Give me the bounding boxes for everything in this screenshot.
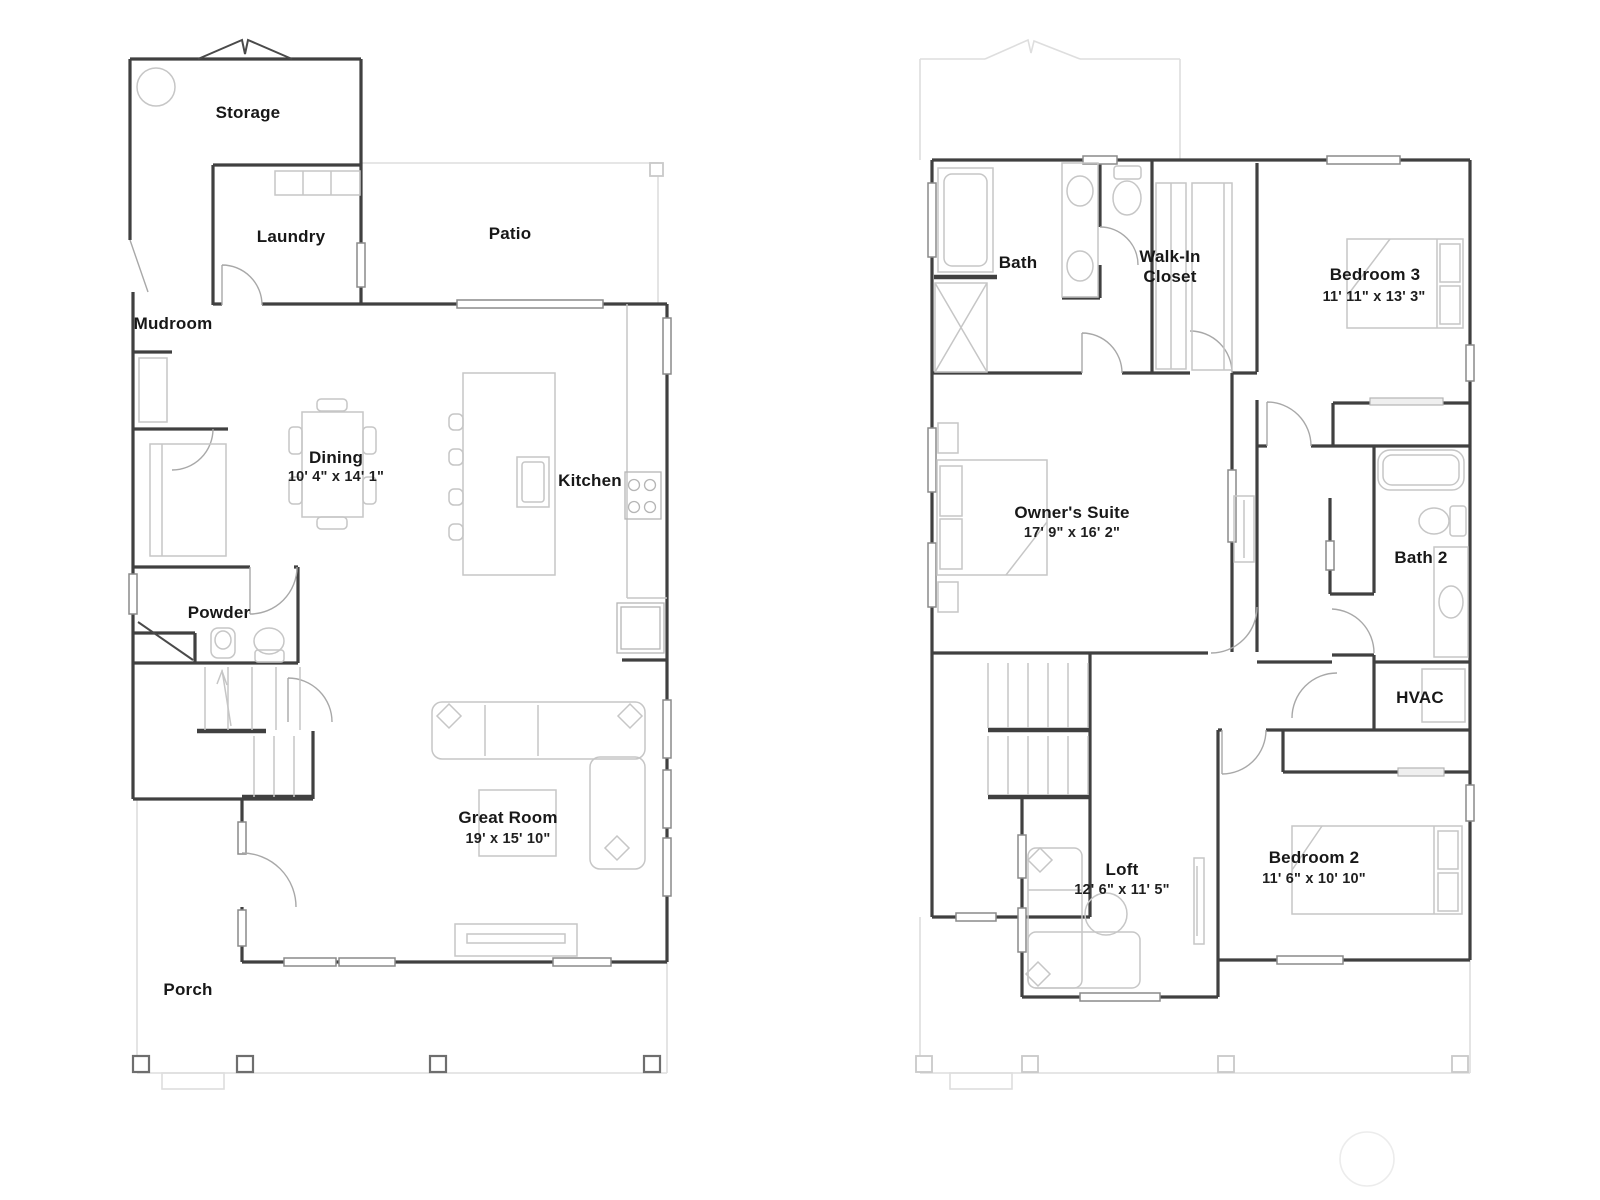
stair-direction-arrow <box>217 670 231 726</box>
floorplan-canvas: Storage Laundry Patio Mudroom Dining 10'… <box>0 0 1600 1200</box>
ghost-circle <box>1340 1132 1394 1186</box>
porch-post <box>430 1056 446 1072</box>
stove-icon <box>625 472 661 519</box>
floorplan-page: Storage Laundry Patio Mudroom Dining 10'… <box>0 0 1600 1200</box>
first-floor-furniture <box>137 68 667 956</box>
linen-closet-icon <box>935 283 987 372</box>
closet-slider <box>1370 398 1443 405</box>
lower-floor-ghost-outline <box>916 40 1470 1186</box>
mudroom-lockers <box>139 358 226 556</box>
room-dims-owners-suite: 17' 9" x 16' 2" <box>1024 525 1120 541</box>
double-vanity-icon <box>1062 163 1098 297</box>
room-dims-bedroom2: 11' 6" x 10' 10" <box>1262 871 1366 887</box>
room-dims-great-room: 19' x 15' 10" <box>466 831 551 847</box>
ghost-post <box>1218 1056 1234 1072</box>
shower-icon <box>938 168 993 272</box>
ghost-post <box>1022 1056 1038 1072</box>
loft-media-console <box>1194 858 1204 944</box>
room-label-great-room: Great Room <box>458 808 557 827</box>
room-label-bath2: Bath 2 <box>1394 548 1447 567</box>
room-label-kitchen: Kitchen <box>558 471 622 490</box>
stair-railing-2f <box>988 730 1090 797</box>
room-label-bedroom2: Bedroom 2 <box>1269 848 1360 867</box>
room-label-bedroom3: Bedroom 3 <box>1330 265 1421 284</box>
porch-post <box>644 1056 660 1072</box>
room-dims-loft: 12' 6" x 11' 5" <box>1074 882 1169 898</box>
first-floor-walls <box>130 40 667 962</box>
laundry-appliances <box>275 171 360 195</box>
tv-console <box>455 924 577 956</box>
roof-peak <box>198 40 292 59</box>
ghost-post <box>916 1056 932 1072</box>
room-label-loft: Loft <box>1106 860 1139 879</box>
stair-railing <box>197 731 313 797</box>
room-label-walk-in-line2: Closet <box>1143 267 1196 286</box>
bedroom2-bed <box>1292 826 1462 914</box>
room-dims-dining: 10' 4" x 14' 1" <box>288 469 384 485</box>
mudroom-entry-door <box>130 240 148 292</box>
ghost-post <box>1452 1056 1468 1072</box>
porch-post <box>133 1056 149 1072</box>
porch-outline <box>133 799 667 1089</box>
toilet-icon <box>1113 166 1141 215</box>
room-label-hvac: HVAC <box>1396 688 1444 707</box>
first-floor-labels: Storage Laundry Patio Mudroom Dining 10'… <box>134 103 622 999</box>
room-label-porch: Porch <box>163 980 212 999</box>
fridge-icon <box>617 603 664 653</box>
room-label-powder: Powder <box>188 603 251 622</box>
room-label-bath: Bath <box>999 253 1038 272</box>
room-label-patio: Patio <box>489 224 532 243</box>
room-label-dining: Dining <box>309 448 363 467</box>
porch-post <box>237 1056 253 1072</box>
room-label-walk-in-line1: Walk-In <box>1139 247 1200 266</box>
under-stair-wall <box>138 622 193 660</box>
room-label-owners-suite: Owner's Suite <box>1014 503 1129 522</box>
room-dims-bedroom3: 11' 11" x 13' 3" <box>1323 289 1426 305</box>
ghost-step <box>950 1073 1012 1089</box>
room-label-laundry: Laundry <box>257 227 326 246</box>
second-floor-walls <box>932 160 1470 997</box>
room-label-storage: Storage <box>216 103 281 122</box>
first-floor-doors <box>130 240 332 907</box>
room-label-mudroom: Mudroom <box>134 314 213 333</box>
powder-fixtures <box>211 628 284 662</box>
patio-post <box>650 163 663 176</box>
second-floor-plan: Bath Walk-In Closet Bedroom 3 11' 11" x … <box>916 40 1474 1186</box>
storage-column <box>137 68 175 106</box>
second-floor-labels: Bath Walk-In Closet Bedroom 3 11' 11" x … <box>999 247 1448 898</box>
second-floor-furniture <box>935 163 1468 988</box>
kitchen-counter <box>627 304 667 598</box>
closet-slider <box>1398 768 1444 776</box>
porch-step <box>162 1073 224 1089</box>
kitchen-island <box>449 373 555 575</box>
first-floor-plan: Storage Laundry Patio Mudroom Dining 10'… <box>129 40 671 1089</box>
